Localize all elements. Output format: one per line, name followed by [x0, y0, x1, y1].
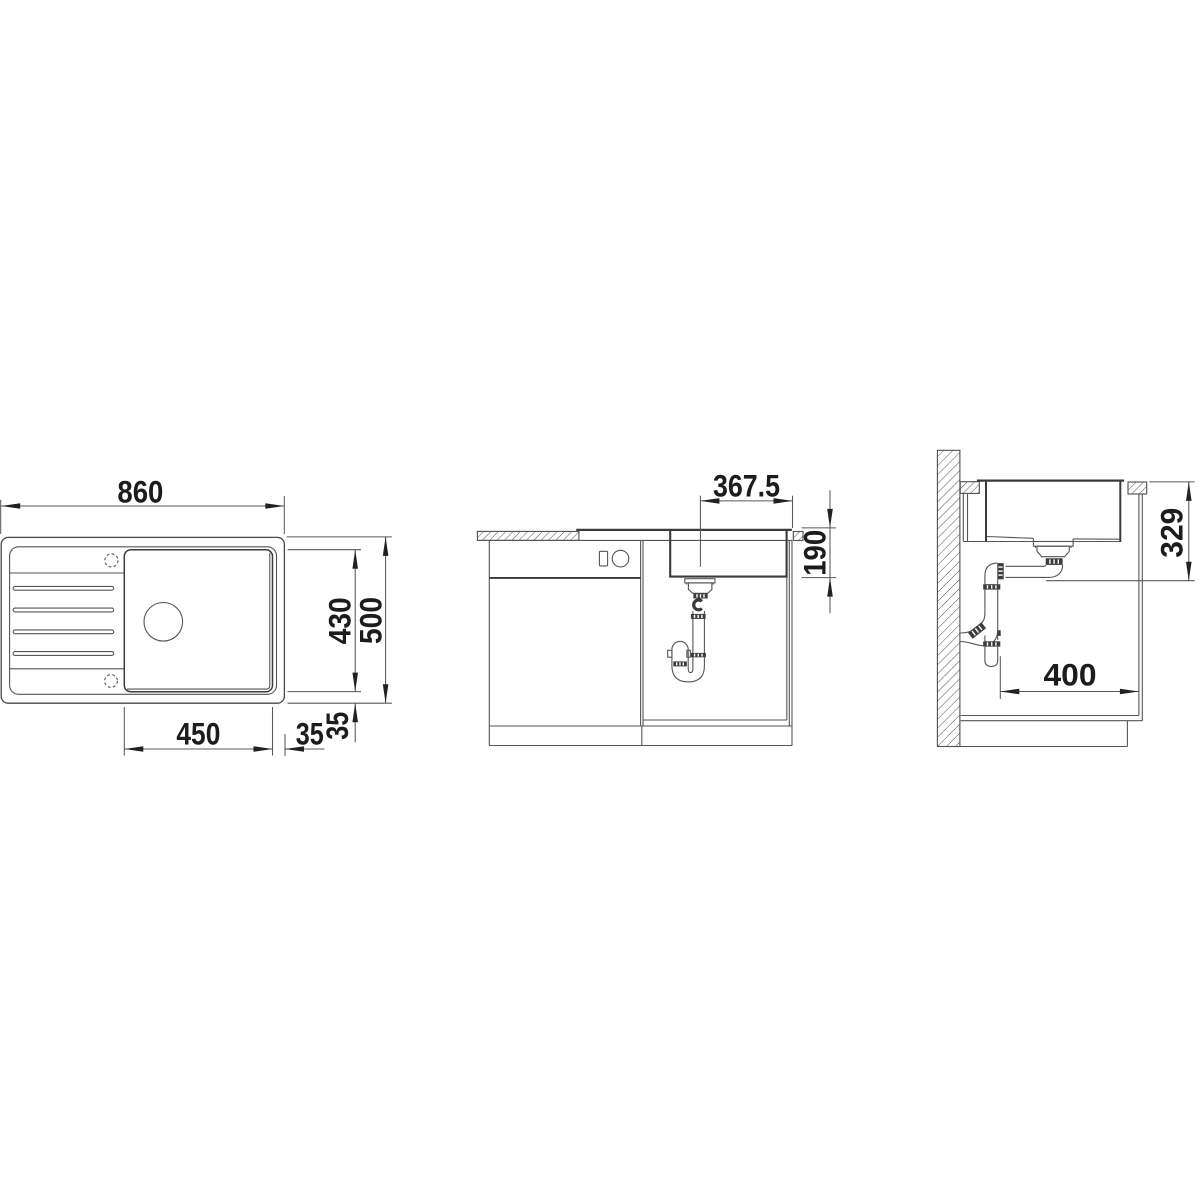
svg-text:430: 430 — [322, 597, 358, 644]
svg-text:500: 500 — [353, 597, 389, 644]
svg-text:450: 450 — [176, 716, 220, 752]
svg-text:35: 35 — [296, 716, 324, 752]
svg-text:190: 190 — [796, 530, 832, 576]
svg-text:400: 400 — [1044, 657, 1097, 693]
svg-text:367.5: 367.5 — [713, 468, 780, 504]
svg-text:329: 329 — [1154, 508, 1190, 558]
svg-text:860: 860 — [117, 474, 163, 510]
svg-text:35: 35 — [319, 712, 355, 740]
